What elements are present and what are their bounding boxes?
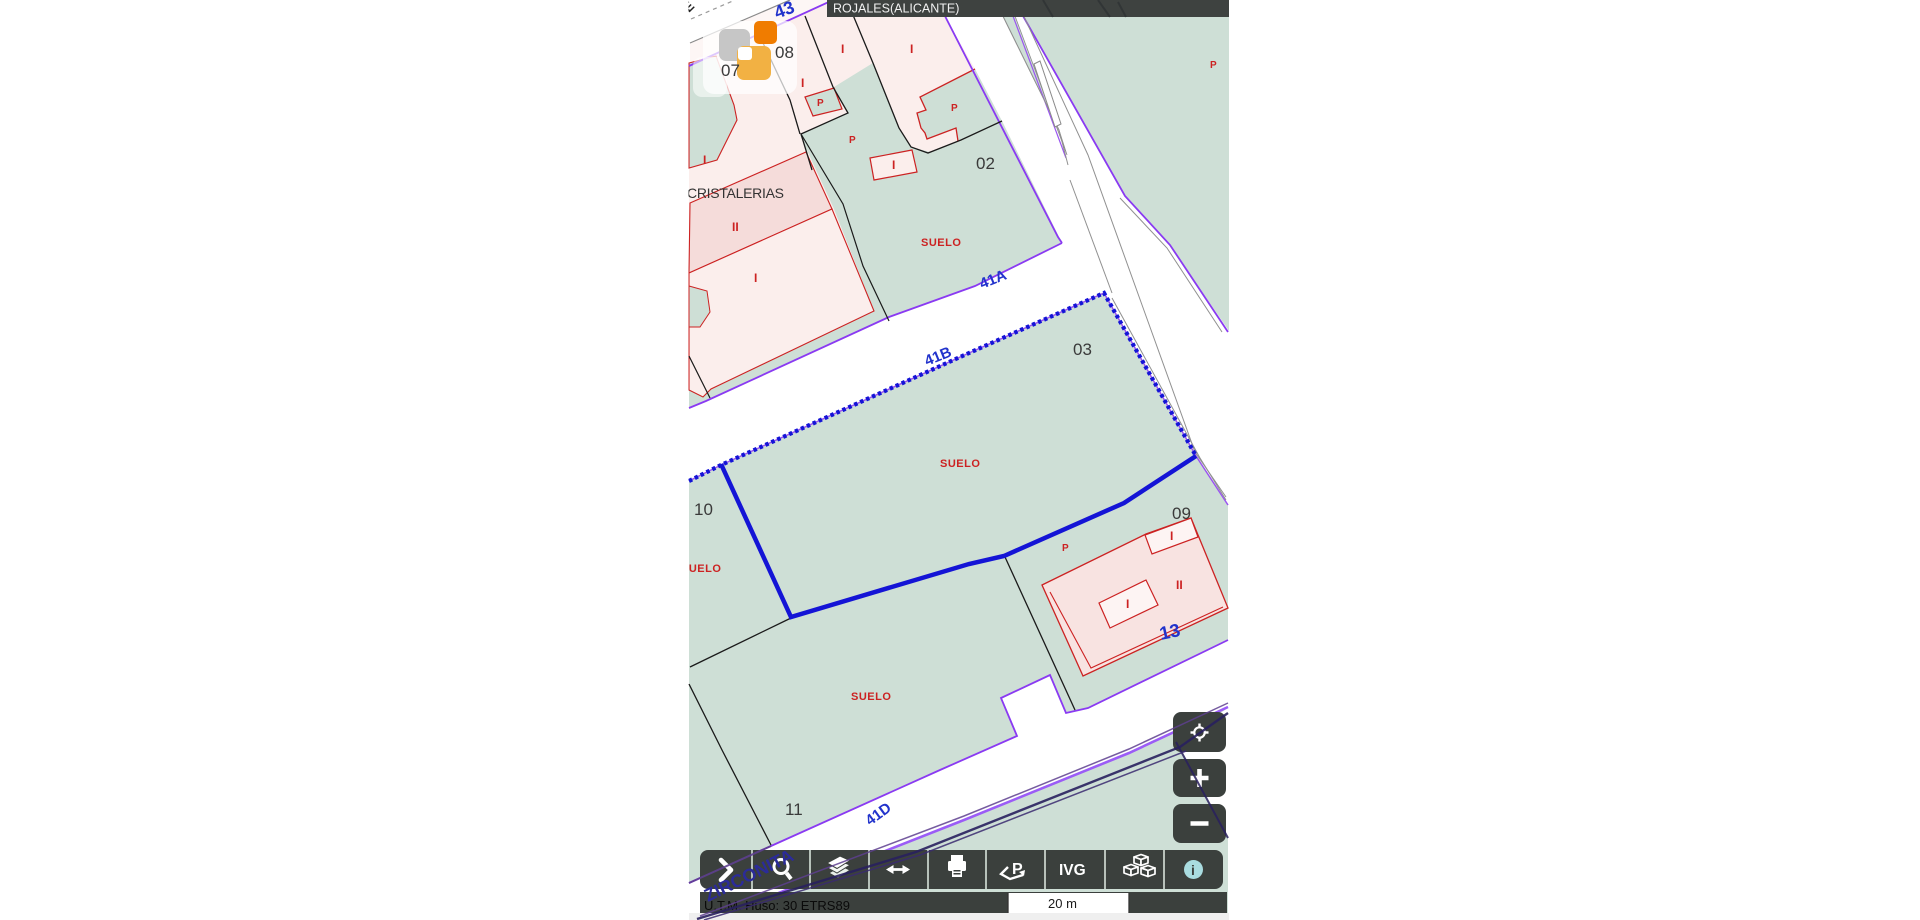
svg-text:I: I [1126, 597, 1129, 611]
svg-text:09: 09 [1172, 504, 1191, 523]
svg-text:SUELO: SUELO [921, 237, 961, 249]
svg-text:P: P [1210, 60, 1217, 71]
svg-text:i: i [1191, 862, 1195, 878]
svg-text:I: I [910, 42, 913, 56]
svg-text:I: I [801, 76, 804, 90]
svg-text:11: 11 [785, 800, 803, 819]
svg-text:IVG: IVG [1059, 862, 1086, 879]
svg-text:10: 10 [694, 500, 713, 519]
svg-text:I: I [841, 42, 844, 56]
svg-text:CRISTALERIAS: CRISTALERIAS [687, 185, 784, 201]
svg-text:I: I [703, 153, 706, 167]
svg-text:I: I [754, 271, 757, 285]
svg-text:I: I [1170, 529, 1173, 543]
svg-text:ROJALES(ALICANTE): ROJALES(ALICANTE) [833, 2, 959, 16]
svg-text:07: 07 [721, 61, 740, 80]
svg-text:I: I [892, 158, 895, 172]
svg-text:P: P [817, 98, 824, 109]
svg-text:02: 02 [976, 154, 995, 173]
svg-text:P: P [951, 103, 958, 114]
svg-text:P: P [849, 135, 856, 146]
svg-text:P: P [1062, 543, 1069, 554]
svg-text:SUELO: SUELO [851, 691, 891, 703]
svg-text:03: 03 [1073, 340, 1092, 359]
svg-text:20 m: 20 m [1048, 896, 1077, 911]
svg-text:II: II [1176, 578, 1183, 592]
svg-text:08: 08 [775, 43, 794, 62]
svg-text:13: 13 [1157, 619, 1181, 644]
svg-text:II: II [732, 220, 739, 234]
svg-text:SUELO: SUELO [940, 458, 980, 470]
